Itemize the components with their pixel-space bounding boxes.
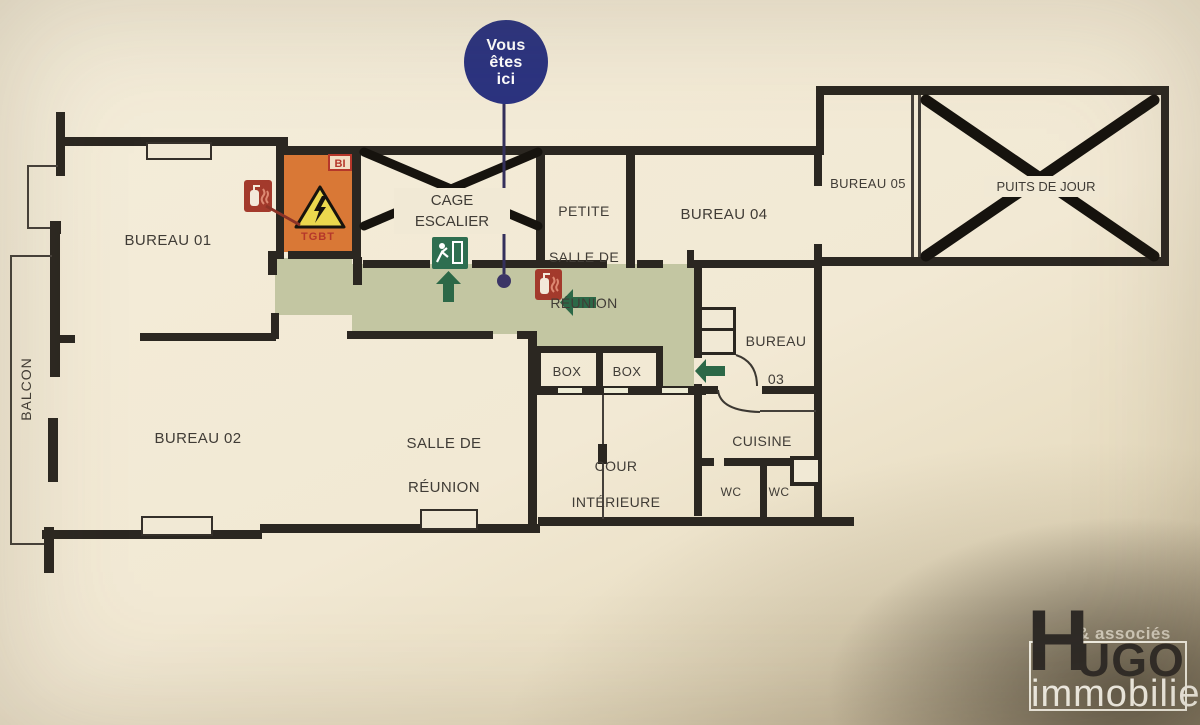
window-marker [146,142,212,160]
room-label-line: BUREAU [731,332,821,351]
corridor-highlight [661,350,694,388]
balcony-line [27,165,58,167]
room-label-box-right: BOX [604,364,650,379]
window-marker [141,516,213,536]
room-label-line: CAGE [394,190,510,211]
emergency-exit-icon [432,237,468,274]
room-label-box-left: BOX [544,364,590,379]
room-label-cuisine: CUISINE [707,433,817,449]
room-label-line: SALLE DE [529,246,639,269]
wall [694,384,702,516]
balcony-line [27,165,29,229]
room-label-line: RÉUNION [529,292,639,315]
wall [271,313,279,339]
room-label-bureau-04: BUREAU 04 [654,206,794,223]
room-label-line: 03 [731,370,821,389]
wall [48,418,58,482]
room-label-line: COUR [541,457,691,475]
wall [724,458,792,466]
wall [288,251,356,259]
wall [50,232,60,377]
room-label-petite-salle: PETITE SALLE DE RÉUNION [529,177,639,338]
window-marker [662,388,688,393]
fire-extinguisher-icon [244,180,272,217]
balcony-line [12,255,52,257]
wall [353,257,362,285]
wall [276,140,284,259]
wall [637,260,663,268]
wall [1161,86,1169,266]
badge-line: Vous [464,37,548,54]
you-are-here-badge: Vous êtes ici [464,20,548,104]
wall [347,331,493,339]
wall [816,86,1168,95]
room-label-cage-escalier: CAGE ESCALIER [394,188,510,234]
window-marker [604,388,628,393]
room-label-puits-de-jour: PUITS DE JOUR [984,176,1108,197]
room-label-bureau-03: BUREAU 03 [731,313,821,408]
corridor-highlight [352,264,694,334]
tgbt-label: TGBT [288,231,348,243]
wall [352,146,361,259]
room-label-bureau-01: BUREAU 01 [98,232,238,249]
wall [822,257,1168,266]
room-label-bureau-02: BUREAU 02 [128,430,268,447]
room-label-line: INTÉRIEURE [541,493,691,511]
balcony-line [10,255,12,545]
wall [268,251,277,275]
wall [284,146,818,155]
room-label-line: SALLE DE [374,433,514,455]
room-label-salle-de-reunion: SALLE DE RÉUNION [374,411,514,521]
room-label-bureau-05: BUREAU 05 [813,176,923,191]
wall [260,524,540,533]
badge-line: êtes [464,54,548,71]
wall [363,260,430,268]
evacuation-arrow-up-icon [436,271,461,307]
bi-marker: BI [328,154,352,171]
window-marker [558,388,582,393]
counter-line [760,410,816,412]
electrical-hazard-icon [294,184,346,235]
wall [140,333,276,341]
corridor-highlight [275,258,352,315]
badge-line: ici [464,71,548,88]
logo-immobilier-text: immobilier [1031,678,1200,710]
floor-plan-photo: BI TGBT BALCON BUREAU 01 BUREAU 02 CAGE … [0,0,1200,725]
room-label-line: PETITE [529,200,639,223]
room-label-line: ESCALIER [394,211,510,232]
wall [55,335,75,343]
hugo-immobilier-logo: & associés H UGO immobilier [1015,608,1200,725]
room-label-wc-left: WC [711,485,751,499]
room-label-balcon: BALCON [18,357,34,421]
room-label-cour-interieure: COUR INTÉRIEURE [541,439,691,529]
room-label-line: RÉUNION [374,477,514,499]
wall [702,458,714,466]
evacuation-arrow-left-icon [695,359,725,388]
balcony-line [12,543,44,545]
wall [687,260,818,268]
wall [816,86,824,155]
room-label-wc-right: WC [759,485,799,499]
duct-box [790,456,822,486]
